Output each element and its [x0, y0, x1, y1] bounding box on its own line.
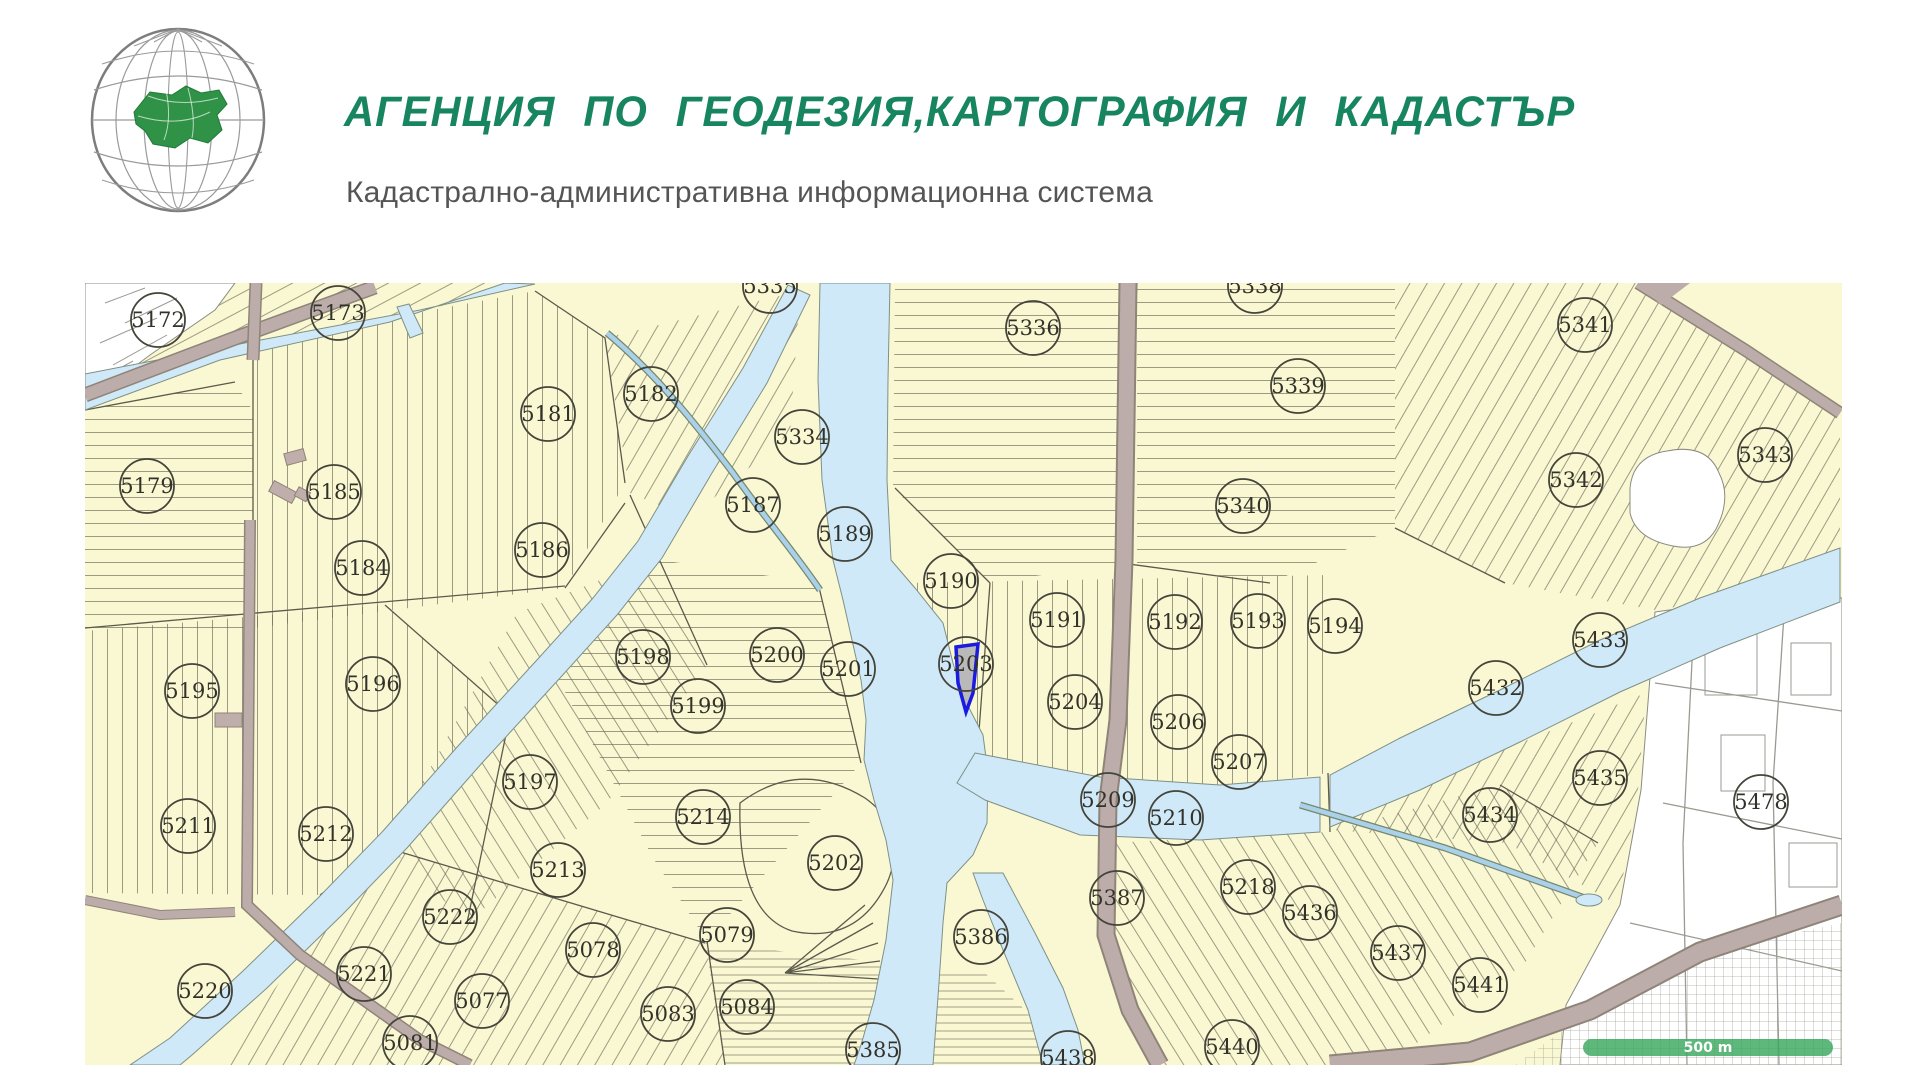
svg-text:5185: 5185	[307, 480, 360, 504]
svg-text:5191: 5191	[1030, 608, 1083, 632]
svg-text:5334: 5334	[775, 425, 828, 449]
svg-text:5204: 5204	[1048, 690, 1101, 714]
cadastral-map[interactable]: 5172517353355336533853415181518253395334…	[85, 283, 1842, 1065]
svg-text:5343: 5343	[1738, 443, 1791, 467]
svg-text:5201: 5201	[821, 657, 874, 681]
agency-globe-logo	[88, 24, 268, 216]
svg-text:5386: 5386	[954, 925, 1007, 949]
svg-text:5181: 5181	[521, 402, 574, 426]
svg-text:5440: 5440	[1205, 1035, 1258, 1059]
svg-text:5195: 5195	[165, 679, 218, 703]
svg-text:5078: 5078	[566, 938, 619, 962]
svg-text:5210: 5210	[1149, 806, 1202, 830]
svg-text:5200: 5200	[750, 643, 803, 667]
svg-text:5338: 5338	[1228, 283, 1281, 298]
svg-text:5220: 5220	[178, 979, 231, 1003]
svg-text:5434: 5434	[1463, 803, 1516, 827]
svg-text:5436: 5436	[1283, 901, 1336, 925]
svg-text:5441: 5441	[1453, 973, 1506, 997]
svg-text:5340: 5340	[1216, 494, 1269, 518]
svg-text:5202: 5202	[808, 851, 861, 875]
svg-text:5222: 5222	[423, 905, 476, 929]
svg-text:5172: 5172	[131, 308, 184, 332]
svg-text:5432: 5432	[1469, 676, 1522, 700]
scale-bar-label: 500 m	[1684, 1040, 1733, 1056]
svg-text:5336: 5336	[1006, 316, 1059, 340]
svg-text:5342: 5342	[1549, 468, 1602, 492]
svg-text:5186: 5186	[515, 538, 568, 562]
svg-text:5435: 5435	[1573, 766, 1626, 790]
svg-text:5194: 5194	[1308, 614, 1361, 638]
svg-text:5478: 5478	[1734, 790, 1787, 814]
svg-text:5193: 5193	[1231, 609, 1284, 633]
svg-text:5335: 5335	[743, 283, 796, 298]
pond	[1576, 894, 1602, 906]
svg-text:5212: 5212	[299, 822, 352, 846]
svg-text:5218: 5218	[1221, 875, 1274, 899]
svg-text:5081: 5081	[383, 1031, 436, 1055]
svg-text:5084: 5084	[720, 995, 773, 1019]
svg-text:5173: 5173	[311, 301, 364, 325]
svg-text:5182: 5182	[624, 382, 677, 406]
svg-text:5438: 5438	[1041, 1046, 1094, 1065]
page-subtitle: Кадастрално-административна информационн…	[346, 176, 1153, 210]
svg-text:5207: 5207	[1212, 750, 1265, 774]
svg-text:5341: 5341	[1558, 313, 1611, 337]
svg-text:5209: 5209	[1081, 788, 1134, 812]
urban-pocket	[1630, 449, 1725, 547]
svg-text:5198: 5198	[616, 645, 669, 669]
svg-text:5199: 5199	[671, 694, 724, 718]
svg-text:5079: 5079	[700, 923, 753, 947]
svg-text:5083: 5083	[641, 1002, 694, 1026]
svg-text:5196: 5196	[346, 672, 399, 696]
svg-text:5184: 5184	[335, 556, 388, 580]
svg-text:5387: 5387	[1090, 886, 1143, 910]
svg-text:5433: 5433	[1573, 628, 1626, 652]
svg-text:5211: 5211	[161, 814, 214, 838]
svg-text:5187: 5187	[726, 493, 779, 517]
svg-text:5385: 5385	[846, 1038, 899, 1062]
svg-text:5189: 5189	[818, 522, 871, 546]
svg-text:5206: 5206	[1151, 710, 1204, 734]
svg-text:5197: 5197	[503, 770, 556, 794]
svg-text:5190: 5190	[924, 569, 977, 593]
svg-text:5221: 5221	[337, 962, 390, 986]
svg-text:5214: 5214	[676, 805, 729, 829]
page: АГЕНЦИЯ ПО ГЕОДЕЗИЯ,КАРТОГРАФИЯ И КАДАСТ…	[0, 0, 1920, 1080]
svg-text:5437: 5437	[1371, 941, 1424, 965]
svg-text:5077: 5077	[455, 989, 508, 1013]
svg-text:5192: 5192	[1148, 610, 1201, 634]
svg-text:5203: 5203	[939, 652, 992, 676]
svg-text:5339: 5339	[1271, 374, 1324, 398]
svg-text:5179: 5179	[120, 474, 173, 498]
svg-text:5213: 5213	[531, 858, 584, 882]
scale-bar: 500 m	[1583, 1039, 1833, 1056]
page-title: АГЕНЦИЯ ПО ГЕОДЕЗИЯ,КАРТОГРАФИЯ И КАДАСТ…	[344, 88, 1644, 137]
